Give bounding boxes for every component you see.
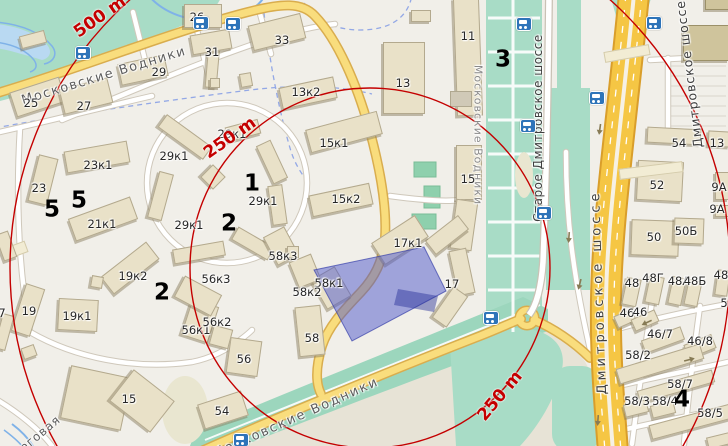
building-label: 29к1 <box>175 218 204 232</box>
oneway-arrow-icon <box>592 412 605 427</box>
building-label: 58/5 <box>697 406 723 420</box>
building-label: 19 <box>22 304 37 318</box>
building-label: 58/2 <box>625 348 651 362</box>
bus-stop-icon <box>516 17 532 31</box>
building-label: 48 <box>714 268 728 282</box>
annotation-number: 5 <box>44 199 60 222</box>
bus-stop-icon <box>233 433 249 446</box>
building-label: 50Б <box>675 224 698 238</box>
bus-stop-icon <box>646 16 662 30</box>
building-label: 58/3 <box>624 394 650 408</box>
building-label: 15 <box>122 392 137 406</box>
building-label: 19к1 <box>63 309 92 323</box>
building-label: 29к1 <box>160 149 189 163</box>
building-label: 7 <box>0 306 6 320</box>
building-label: 25 <box>24 96 39 110</box>
bus-stop-icon <box>536 206 552 220</box>
building-label: 13к2 <box>292 85 321 99</box>
annotation-number: 4 <box>674 389 690 412</box>
building <box>239 72 253 88</box>
building <box>450 91 472 107</box>
building-label: 9А <box>709 202 724 216</box>
annotation-number: 5 <box>71 190 87 213</box>
building-label: 46 <box>633 305 648 319</box>
oneway-arrow-icon <box>593 120 607 136</box>
building-label: 19к2 <box>119 269 148 283</box>
building-label: 13 <box>710 136 725 150</box>
building-label: 17к1 <box>394 236 423 250</box>
map-canvas[interactable]: 26252729313313к2131115к115к229к129к129к1… <box>0 0 728 446</box>
building-label: 15к2 <box>332 192 361 206</box>
bus-stop-icon <box>225 17 241 31</box>
building-label: 58 <box>305 331 320 345</box>
building-label: 58к3 <box>269 249 298 263</box>
building-label: 13 <box>396 76 411 90</box>
building-label: 56к2 <box>203 315 232 329</box>
bus-stop-icon <box>483 311 499 325</box>
building-label: 31 <box>205 45 220 59</box>
building-label: 48Г <box>642 271 664 285</box>
building-label: 15к1 <box>320 136 349 150</box>
bus-stop-icon <box>520 119 536 133</box>
building <box>705 0 728 10</box>
building-label: 52 <box>650 178 665 192</box>
bus-stop-icon <box>75 46 91 60</box>
building-label: 46/8 <box>687 334 713 348</box>
annotation-number: 2 <box>221 213 237 236</box>
bus-stop-icon <box>589 91 605 105</box>
building-label: 29 <box>152 65 167 79</box>
building-label: 23 <box>32 181 47 195</box>
building-label: 5 <box>720 296 727 310</box>
building-label: 15 <box>461 172 476 186</box>
building-label: 54 <box>672 136 687 150</box>
building-label: 33 <box>275 33 290 47</box>
building <box>90 275 104 289</box>
annotation-number: 3 <box>495 49 511 72</box>
building <box>210 78 220 88</box>
oneway-arrow-icon <box>563 229 576 244</box>
building-label: 27 <box>77 99 92 113</box>
building-label: 48Б <box>684 274 707 288</box>
building-label: 9А <box>711 180 726 194</box>
bus-stop-icon <box>193 16 209 30</box>
building-label: 56 <box>237 352 252 366</box>
annotation-number: 2 <box>154 282 170 305</box>
building-label: 46/7 <box>647 327 673 341</box>
building-label: 17 <box>445 277 460 291</box>
building-label: 21к1 <box>88 217 117 231</box>
building-label: 48 <box>625 276 640 290</box>
building-label: 50 <box>647 230 662 244</box>
building-label: 58к2 <box>293 285 322 299</box>
building-label: 56к3 <box>202 272 231 286</box>
building-label: 54 <box>215 404 230 418</box>
building-label: 23к1 <box>84 158 113 172</box>
annotation-number: 1 <box>244 173 260 196</box>
building-label: 11 <box>461 29 476 43</box>
building <box>411 10 431 22</box>
